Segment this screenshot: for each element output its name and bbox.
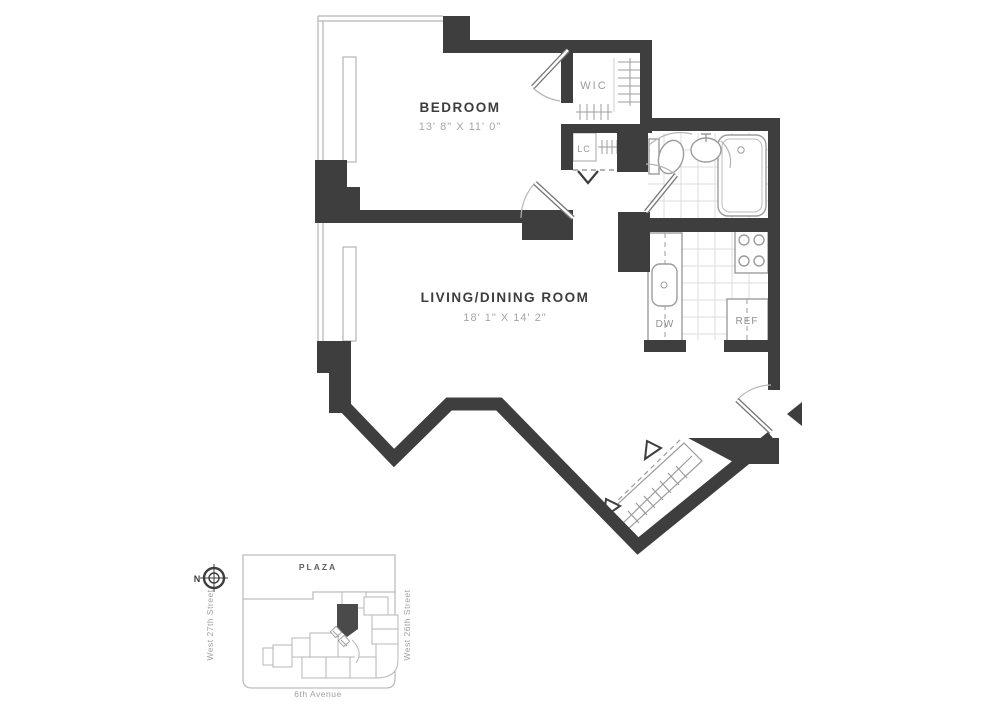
- floorplan-page: BEDROOM 13' 8" X 11' 0" LIVING/DINING RO…: [0, 0, 1000, 714]
- kitchen-sink: [652, 264, 677, 306]
- plaza-label: PLAZA: [299, 562, 337, 572]
- walls: [315, 16, 802, 546]
- living-room-label: LIVING/DINING ROOM: [421, 290, 590, 305]
- living-room-dimensions: 18' 1" X 14' 2": [463, 312, 546, 324]
- lc-label: LC: [577, 144, 591, 154]
- room-labels: BEDROOM 13' 8" X 11' 0" LIVING/DINING RO…: [419, 80, 759, 330]
- stove: [735, 230, 768, 273]
- entry-closet: [604, 438, 702, 530]
- entry-arrow: [787, 402, 802, 426]
- lc-closet: [573, 133, 624, 183]
- toilet: [649, 137, 688, 177]
- refrigerator-label: REF: [736, 316, 759, 327]
- street-label-6th-avenue: 6th Avenue: [294, 689, 341, 699]
- bedroom-label: BEDROOM: [420, 100, 501, 115]
- bedroom-dimensions: 13' 8" X 11' 0": [419, 121, 501, 133]
- street-label-west-27th: West 27th Street: [205, 589, 215, 660]
- dishwasher-label: DW: [656, 319, 675, 330]
- bathtub: [718, 135, 766, 216]
- wic-label: WIC: [580, 80, 607, 92]
- floorplan-canvas: BEDROOM 13' 8" X 11' 0" LIVING/DINING RO…: [0, 0, 1000, 714]
- north-label: N: [194, 574, 201, 584]
- apartment-plan: BEDROOM 13' 8" X 11' 0" LIVING/DINING RO…: [315, 16, 802, 546]
- site-plan: N Wes: [194, 555, 412, 699]
- street-label-west-26th: West 26th Street: [402, 589, 412, 660]
- north-compass-icon: [200, 564, 228, 592]
- entry-door: [737, 385, 771, 432]
- site-building-units: [263, 592, 398, 678]
- bathroom-fixtures: [648, 133, 766, 217]
